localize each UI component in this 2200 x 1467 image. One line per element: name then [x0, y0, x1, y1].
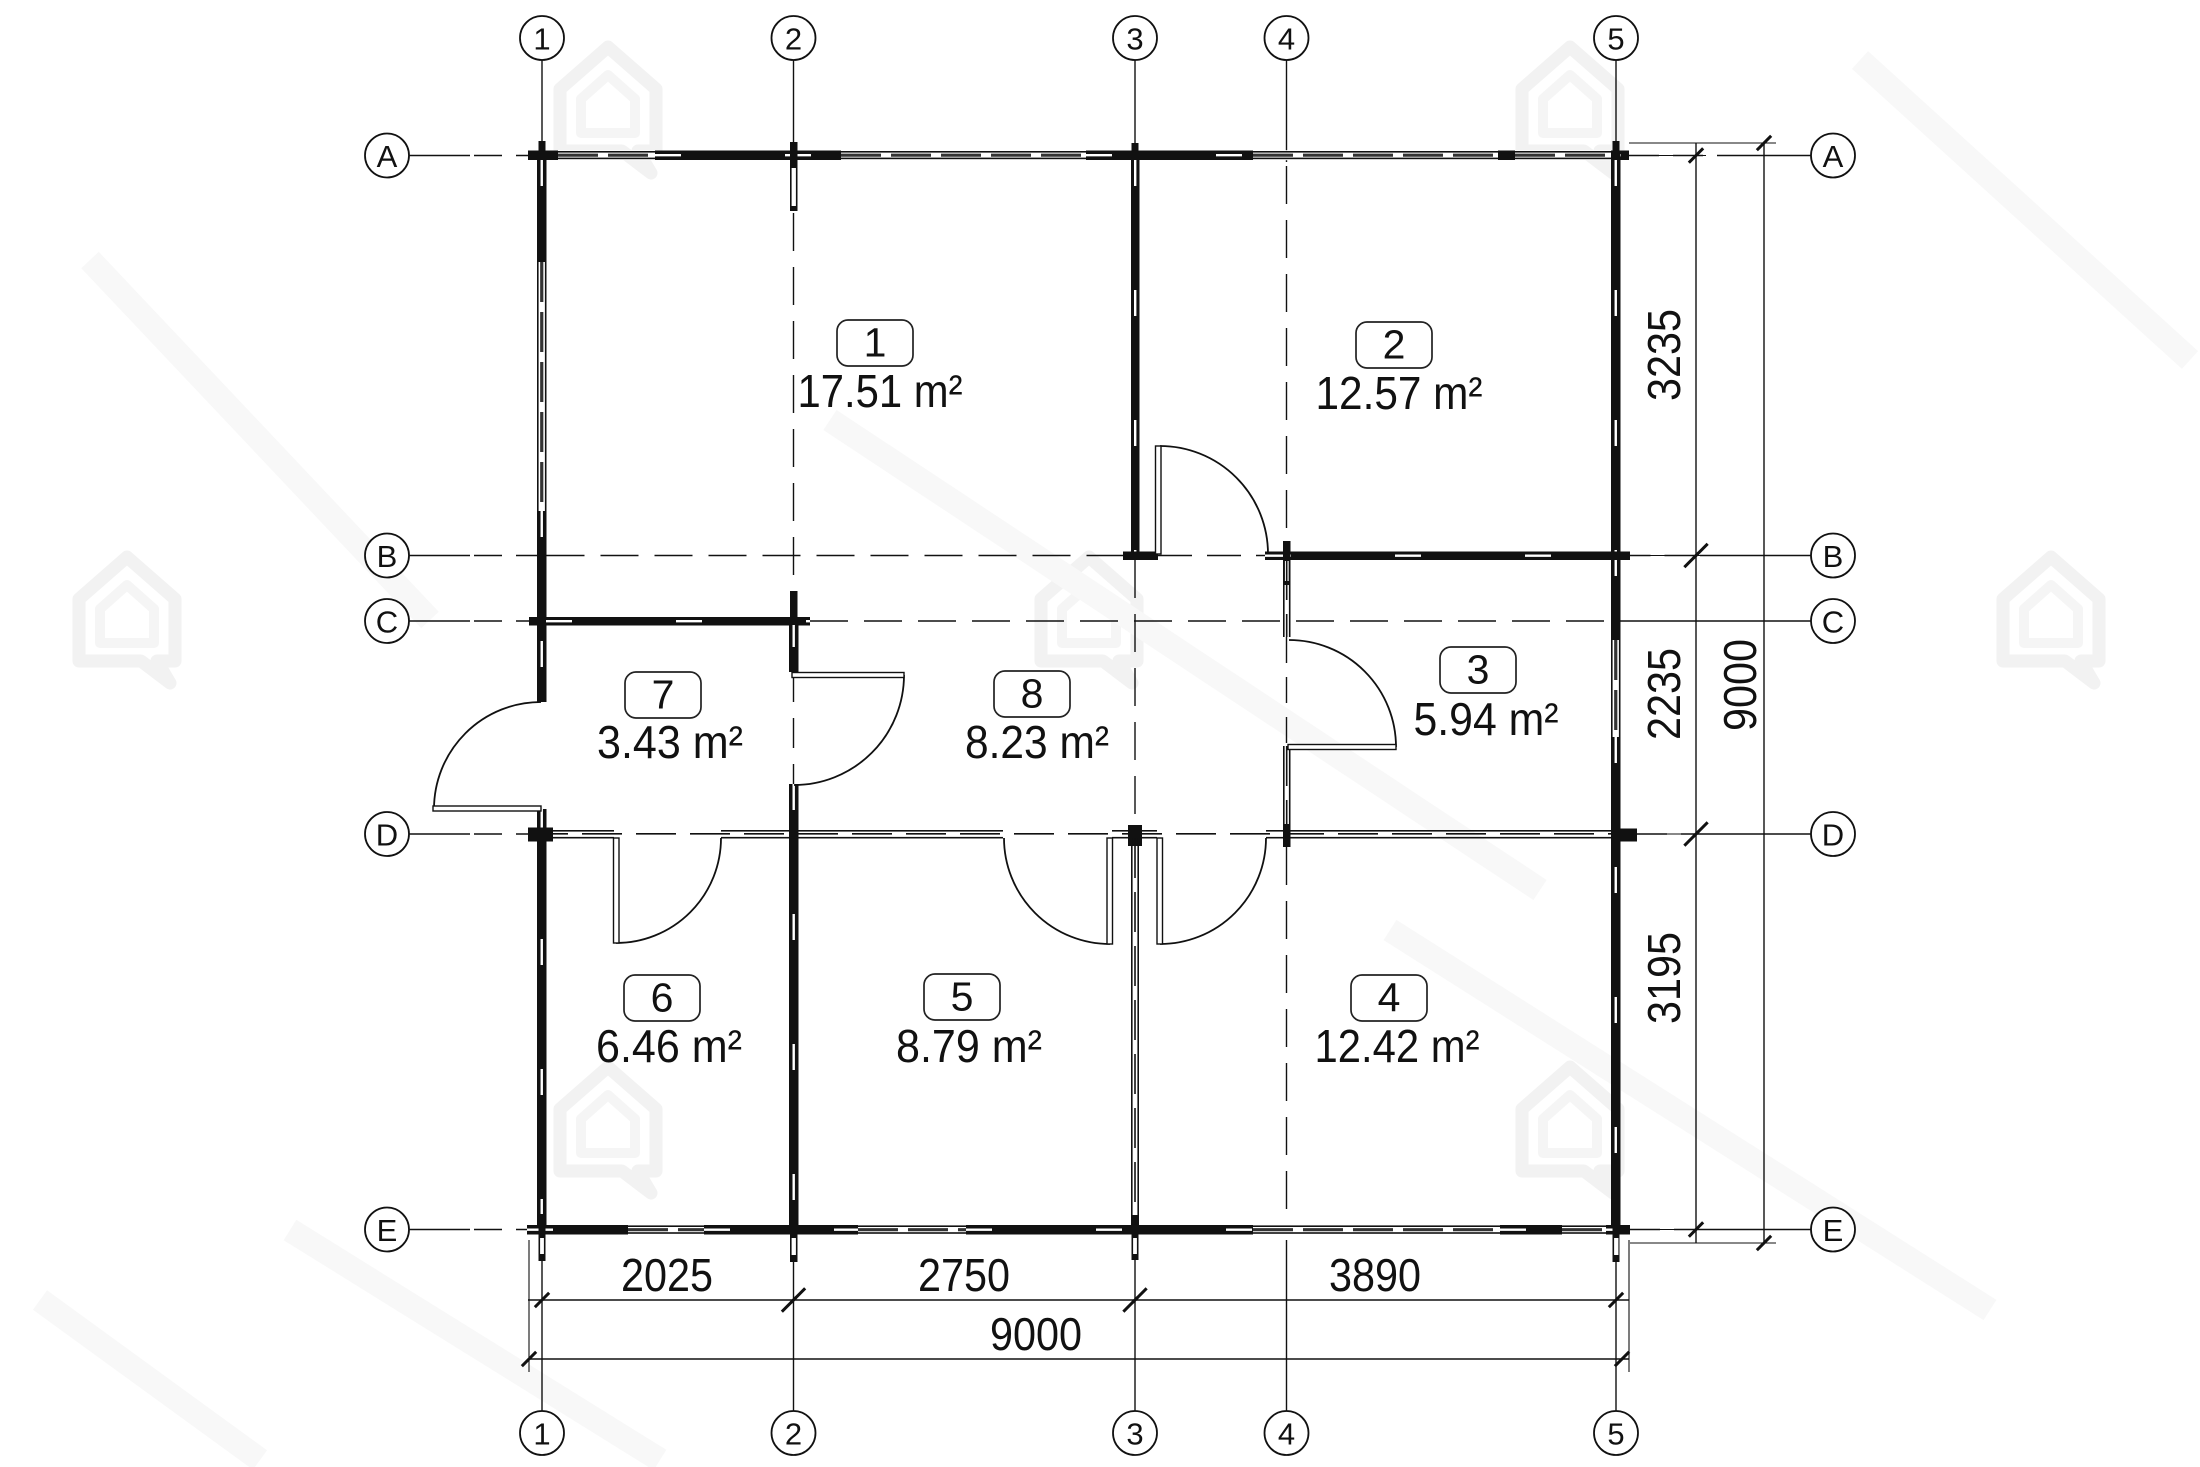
svg-text:D: D: [376, 818, 398, 853]
svg-text:2: 2: [1383, 322, 1406, 368]
svg-text:1: 1: [864, 320, 887, 366]
svg-text:5: 5: [951, 974, 974, 1020]
svg-text:1: 1: [533, 22, 550, 57]
svg-text:2750: 2750: [918, 1249, 1010, 1301]
svg-text:4: 4: [1278, 22, 1295, 57]
svg-text:9000: 9000: [990, 1308, 1082, 1360]
svg-text:3235: 3235: [1638, 309, 1690, 401]
svg-text:D: D: [1822, 818, 1844, 853]
svg-text:B: B: [377, 539, 398, 574]
svg-text:1: 1: [533, 1417, 550, 1452]
svg-text:12.57 m²: 12.57 m²: [1316, 367, 1483, 419]
svg-text:C: C: [376, 605, 398, 640]
svg-text:B: B: [1823, 539, 1844, 574]
svg-text:6.46 m²: 6.46 m²: [596, 1020, 742, 1072]
svg-text:C: C: [1822, 605, 1844, 640]
svg-text:9000: 9000: [1714, 639, 1766, 731]
svg-text:2: 2: [785, 1417, 802, 1452]
svg-text:3: 3: [1126, 1417, 1143, 1452]
svg-text:6: 6: [651, 975, 674, 1021]
svg-text:2235: 2235: [1638, 648, 1690, 740]
svg-text:8.79 m²: 8.79 m²: [896, 1020, 1042, 1072]
svg-text:5.94 m²: 5.94 m²: [1414, 693, 1559, 745]
svg-text:5: 5: [1607, 22, 1624, 57]
svg-text:12.42 m²: 12.42 m²: [1315, 1020, 1480, 1072]
svg-text:17.51 m²: 17.51 m²: [798, 365, 963, 417]
svg-text:5: 5: [1607, 1417, 1624, 1452]
svg-text:2: 2: [785, 22, 802, 57]
svg-text:8.23 m²: 8.23 m²: [965, 716, 1109, 768]
svg-text:3: 3: [1126, 22, 1143, 57]
svg-text:3: 3: [1467, 647, 1490, 693]
svg-text:2025: 2025: [621, 1249, 713, 1301]
svg-text:4: 4: [1278, 1417, 1295, 1452]
svg-text:3195: 3195: [1638, 932, 1690, 1024]
svg-text:4: 4: [1378, 975, 1401, 1021]
svg-text:E: E: [377, 1213, 398, 1248]
svg-text:7: 7: [652, 672, 675, 718]
svg-text:3.43 m²: 3.43 m²: [597, 716, 743, 768]
svg-text:A: A: [1823, 139, 1844, 174]
svg-text:8: 8: [1021, 671, 1044, 717]
svg-text:3890: 3890: [1329, 1249, 1421, 1301]
svg-text:E: E: [1823, 1213, 1844, 1248]
svg-text:A: A: [377, 139, 398, 174]
